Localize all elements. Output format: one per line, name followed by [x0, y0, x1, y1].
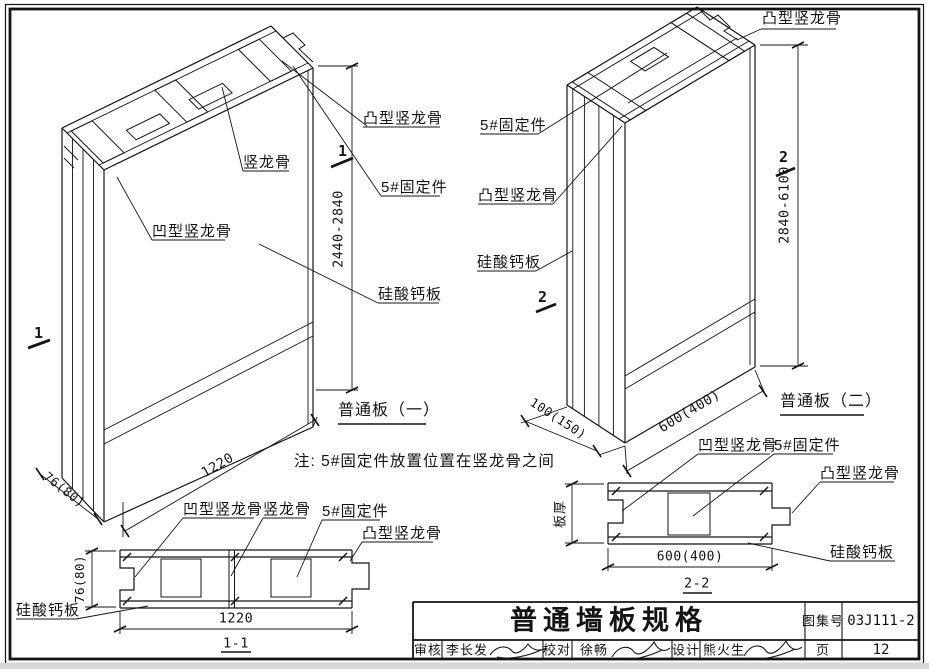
panel1-label-board: 硅酸钙板	[378, 287, 442, 302]
panel1-caption: 普通板（一）	[338, 403, 440, 419]
audit-label: 审核	[414, 644, 442, 657]
page-number: 12	[873, 643, 890, 657]
atlas-number-label: 图集号	[802, 615, 844, 628]
design-name: 熊火生	[703, 644, 745, 657]
panel1-section-mark-top: 1	[338, 144, 347, 159]
drawing-linework	[0, 0, 929, 669]
proof-name: 徐畅	[580, 644, 608, 657]
panel2-label-board: 硅酸钙板	[477, 255, 541, 270]
atlas-number-value: 03J111-2	[847, 614, 914, 628]
section11-label-board: 硅酸钙板	[16, 603, 80, 618]
panel1-isometric-drawing	[62, 26, 313, 522]
section22-label-board: 硅酸钙板	[830, 545, 894, 560]
signatures	[490, 641, 802, 660]
scan-edge-artifact	[0, 663, 929, 669]
panel1-label-fixing: 5#固定件	[381, 180, 448, 195]
section22-label-fixing: 5#固定件	[774, 438, 841, 453]
page-label: 页	[816, 644, 830, 657]
design-label: 设计	[672, 644, 700, 657]
sheet-border	[6, 5, 924, 664]
section-1-1-drawing	[120, 550, 369, 608]
panel2-label-convex-stud-top: 凸型竖龙骨	[762, 11, 842, 26]
title-block-title: 普通墙板规格	[510, 608, 708, 635]
panel1-section-mark-left: 1	[34, 326, 43, 341]
section22-dim-width: 600(400)	[657, 551, 724, 564]
panel1-label-stud: 竖龙骨	[243, 155, 291, 170]
proof-label: 校对	[543, 644, 571, 657]
design-signature-scrawl	[744, 641, 802, 659]
section22-label-convex-stud: 凸型竖龙骨	[820, 466, 900, 481]
panel2-section-mark-left: 2	[538, 290, 547, 305]
panel2-dimensions	[521, 42, 808, 477]
panel2-label-convex-stud: 凸型竖龙骨	[478, 188, 558, 203]
section22-label-concave-stud: 凹型竖龙骨	[698, 438, 778, 453]
section11-dim-width: 1220	[219, 612, 254, 626]
panel1-label-concave-stud: 凹型竖龙骨	[152, 224, 232, 239]
audit-signature-scrawl	[490, 644, 546, 658]
panel2-caption: 普通板（二）	[780, 394, 882, 410]
panel2-dim-height: 2840-6100	[778, 166, 792, 244]
section11-caption: 1-1	[223, 637, 249, 651]
panel2-label-fixing: 5#固定件	[480, 118, 547, 133]
section-2-2-drawing	[608, 483, 790, 544]
panel1-dim-height: 2440-2840	[332, 190, 346, 268]
audit-name: 李长发	[446, 644, 488, 657]
section11-label-fixing: 5#固定件	[322, 504, 389, 519]
panel1-label-convex-stud: 凸型竖龙骨	[363, 111, 443, 126]
section22-thickness-label: 板厚	[554, 500, 567, 528]
note-text: 注: 5#固定件放置位置在竖龙骨之间	[294, 454, 555, 470]
panel2-section-mark-top: 2	[779, 150, 788, 165]
panel2-leader-lines	[477, 29, 864, 415]
drawing-sheet: 凸型竖龙骨 竖龙骨 5#固定件 凹型竖龙骨 硅酸钙板 普通板（一） 1 1 24…	[0, 0, 929, 669]
proof-signature-scrawl	[612, 642, 670, 660]
section11-label-convex-stud: 凸型竖龙骨	[362, 526, 442, 541]
section11-label-stud: 竖龙骨	[263, 502, 311, 517]
section11-label-concave-stud: 凹型竖龙骨	[183, 502, 263, 517]
section22-caption: 2-2	[684, 577, 710, 591]
panel2-isometric-drawing	[567, 7, 755, 443]
section11-dim-thickness: 76(80)	[74, 555, 87, 603]
